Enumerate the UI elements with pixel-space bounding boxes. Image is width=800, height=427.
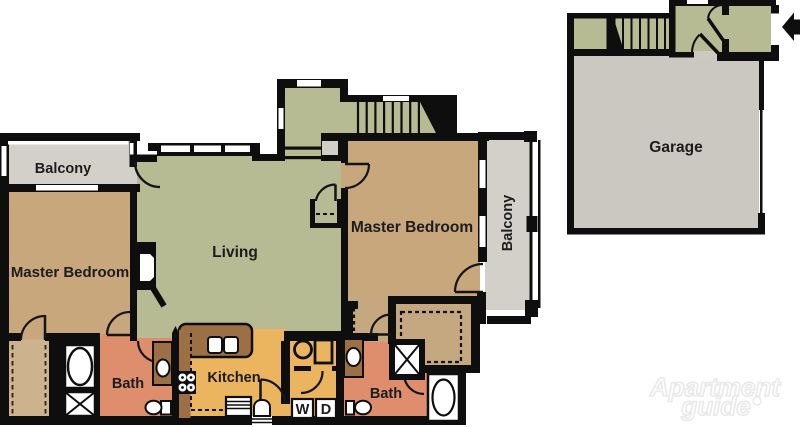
svg-text:Balcony: Balcony bbox=[35, 161, 91, 177]
svg-text:Balcony: Balcony bbox=[500, 195, 516, 251]
svg-text:Master Bedroom: Master Bedroom bbox=[351, 219, 473, 236]
svg-text:Garage: Garage bbox=[649, 139, 703, 156]
svg-text:Living: Living bbox=[212, 244, 258, 261]
svg-text:Kitchen: Kitchen bbox=[207, 370, 260, 386]
svg-text:guide: guide bbox=[680, 391, 750, 421]
svg-text:W: W bbox=[296, 402, 310, 418]
svg-text:D: D bbox=[321, 402, 331, 418]
svg-text:Bath: Bath bbox=[370, 386, 402, 402]
svg-text:Master Bedroom: Master Bedroom bbox=[11, 264, 129, 281]
svg-text:Bath: Bath bbox=[112, 376, 144, 392]
